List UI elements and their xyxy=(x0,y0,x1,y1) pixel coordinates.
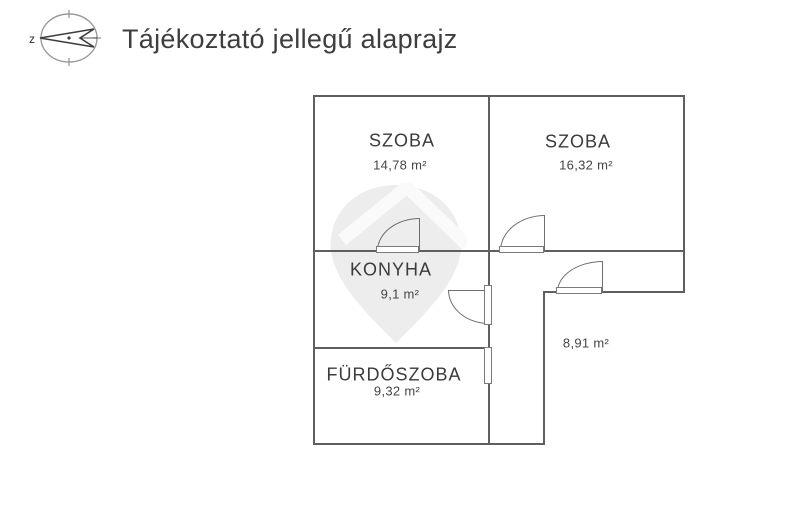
wall-center-seg-2 xyxy=(488,324,490,348)
wall-kitchen-bath-divider xyxy=(313,347,490,349)
room-label-furdoszoba: FÜRDŐSZOBA xyxy=(326,365,461,386)
room-area-konyha: 9,1 m² xyxy=(381,287,420,302)
wall-hall-top-right-seg xyxy=(601,291,685,293)
threshold-kitchen xyxy=(484,285,492,325)
wall-mid-seg-1 xyxy=(313,250,377,252)
room-area-szoba-1: 14,78 m² xyxy=(373,158,427,173)
wall-outer-top xyxy=(313,95,685,97)
compass-center-dot xyxy=(67,36,70,39)
wall-center-seg-1 xyxy=(488,95,490,286)
threshold-szoba-1 xyxy=(376,246,419,253)
floor-plan-page: z Tájékoztató jellegű alaprajz xyxy=(0,0,800,525)
wall-hall-left xyxy=(543,291,545,445)
bathroom-wall-opening xyxy=(484,347,492,384)
wall-center-seg-3 xyxy=(488,384,490,445)
room-label-szoba-1: SZOBA xyxy=(369,131,435,152)
wall-outer-left xyxy=(313,95,315,445)
room-area-szoba-2: 16,32 m² xyxy=(559,158,613,173)
threshold-szoba-2 xyxy=(499,246,544,253)
compass-icon: z xyxy=(26,8,110,68)
room-label-konyha: KONYHA xyxy=(350,260,432,281)
page-title: Tájékoztató jellegű alaprajz xyxy=(122,24,458,55)
room-area-furdoszoba: 9,32 m² xyxy=(374,384,420,399)
wall-outer-right xyxy=(683,95,685,293)
wall-mid-seg-3 xyxy=(543,250,685,252)
room-area-hall: 8,91 m² xyxy=(563,336,609,351)
door-kitchen xyxy=(448,290,489,324)
floor-plan: SZOBA 14,78 m² SZOBA 16,32 m² KONYHA 9,1… xyxy=(313,95,685,445)
wall-hall-top-left-seg xyxy=(543,291,557,293)
room-label-szoba-2: SZOBA xyxy=(545,132,611,153)
threshold-hall xyxy=(556,287,602,294)
wall-outer-bottom xyxy=(313,443,545,445)
compass-direction-label: z xyxy=(29,32,35,46)
